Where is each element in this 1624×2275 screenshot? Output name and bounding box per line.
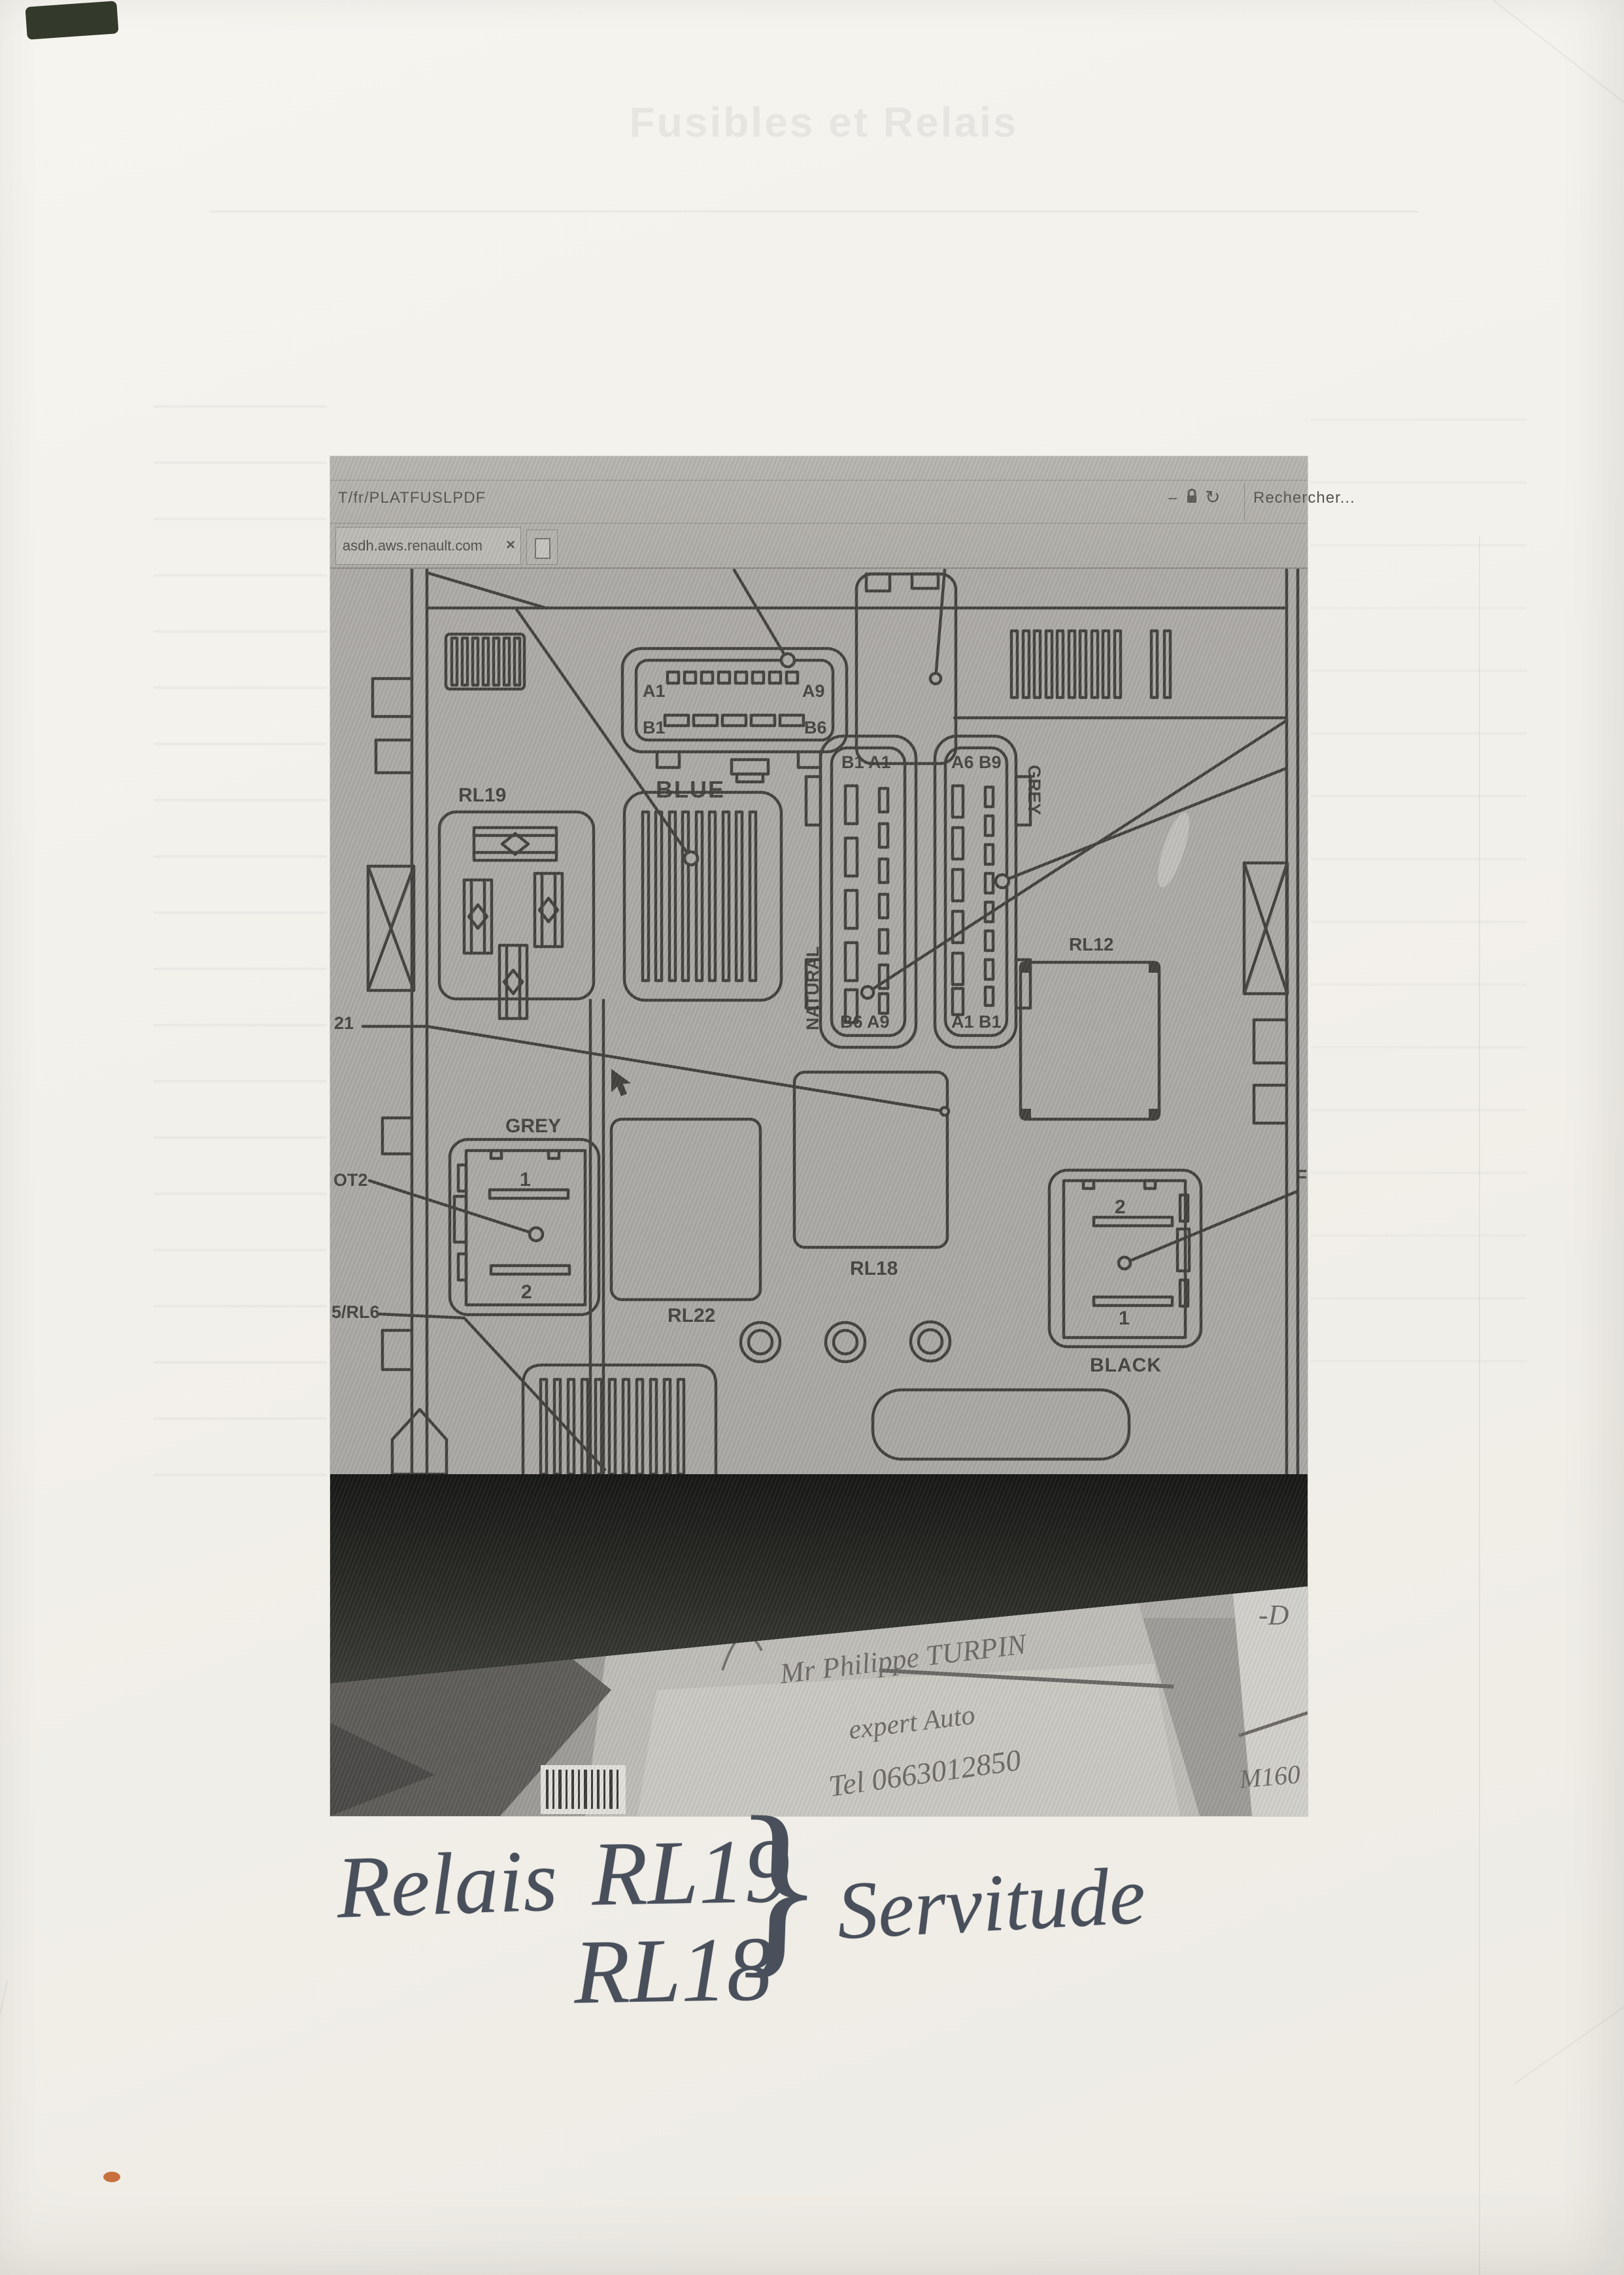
lock-icon: [1185, 488, 1198, 505]
paper-crease-bottomleft: [0, 1981, 8, 2275]
page-icon: [535, 538, 550, 559]
leader-dot: [781, 654, 794, 667]
paper-crease-topright: [1466, 0, 1624, 141]
blue-pin-b1: B1: [643, 718, 666, 737]
rl19-label: RL19: [458, 784, 506, 806]
search-box-label: Rechercher...: [1253, 489, 1355, 507]
blue-pin-b6: B6: [804, 718, 827, 737]
leader-dot: [930, 673, 941, 684]
black-relay-pin1: 1: [1119, 1307, 1130, 1329]
leader-dot: [862, 986, 873, 998]
rl18-label: RL18: [850, 1258, 898, 1279]
browser-tab: asdh.aws.renault.com ×: [335, 527, 521, 565]
grey-relay-pin1: 1: [520, 1169, 531, 1190]
minimize-icon: –: [1168, 489, 1177, 507]
tab-title: asdh.aws.renault.com: [343, 537, 482, 554]
ghost-table-right: [1311, 418, 1527, 1399]
mouse-cursor-icon: [611, 1069, 631, 1096]
black-relay-label: BLACK: [1090, 1355, 1162, 1376]
blue-pin-a1: A1: [643, 681, 666, 701]
leader-dot: [1119, 1257, 1130, 1269]
blue-connector-label: BLUE: [656, 776, 725, 803]
rl5-rl6-partial-label: 5/RL6: [331, 1302, 380, 1322]
grey-connector-label: GREY: [1024, 765, 1044, 815]
blue-pin-a9: A9: [802, 681, 825, 701]
ghost-title: Fusibles et Relais: [575, 98, 1072, 146]
ghost-rule: [209, 211, 1419, 212]
grey-conn-bottom-pins: A1 B1: [951, 1012, 1002, 1032]
leader-dot: [530, 1228, 543, 1241]
ghost-table-left: [154, 405, 327, 1517]
diagram-linework: [363, 569, 1298, 1474]
annotation-relais: Relais: [335, 1836, 559, 1932]
photo-glare: [1151, 809, 1196, 890]
ot2-partial-label: OT2: [333, 1170, 368, 1190]
scanner-edge-mark: [25, 1, 118, 40]
note-mark-d: -D: [1259, 1599, 1289, 1631]
annotation-brace: }: [728, 1787, 828, 1986]
leader-dot: [996, 875, 1009, 888]
partial-f-label: F: [1295, 1166, 1307, 1188]
grey-relay-label: GREY: [505, 1115, 561, 1137]
natural-bottom-pins: B6 A9: [840, 1012, 890, 1032]
leader-dot: [685, 852, 698, 865]
browser-chrome: T/fr/PLATFUSLPDF – ↻ Rechercher... asdh.…: [330, 456, 1308, 569]
tab-close-icon: ×: [506, 536, 515, 554]
new-tab-button: [526, 530, 558, 565]
orange-ink-dot: [103, 2172, 120, 2182]
toolbar-separator: [1244, 484, 1245, 522]
grey-conn-top-pins: A6 B9: [951, 752, 1002, 772]
leader-dot: [941, 1107, 949, 1115]
rl21-partial-label: 21: [334, 1013, 354, 1033]
fusebox-diagram: A1 A9 B1 B6 BLUE RL19 B1 A1 B6 A9 NATURA…: [330, 569, 1308, 1474]
toolbar-divider: [330, 480, 1308, 480]
photo-of-monitor: T/fr/PLATFUSLPDF – ↻ Rechercher... asdh.…: [330, 456, 1308, 1816]
address-bar-url: T/fr/PLATFUSLPDF: [338, 489, 486, 507]
natural-top-pins: B1 A1: [841, 752, 891, 772]
rl12-label: RL12: [1069, 934, 1113, 954]
rl22-label: RL22: [668, 1305, 715, 1326]
tabbar-divider: [330, 523, 1308, 524]
black-relay-pin2: 2: [1115, 1196, 1126, 1218]
scanned-page: Fusibles et Relais T/fr/PLATFUSLPDF – ↻ …: [0, 0, 1624, 2275]
natural-connector-label: NATURAL: [803, 947, 822, 1030]
paper-crease-bottomright: [1515, 1970, 1624, 2084]
grey-relay-pin2: 2: [521, 1281, 532, 1303]
annotation-servitude: Servitude: [835, 1855, 1147, 1953]
refresh-icon: ↻: [1205, 486, 1221, 508]
note-mark-m: M160: [1238, 1759, 1302, 1794]
